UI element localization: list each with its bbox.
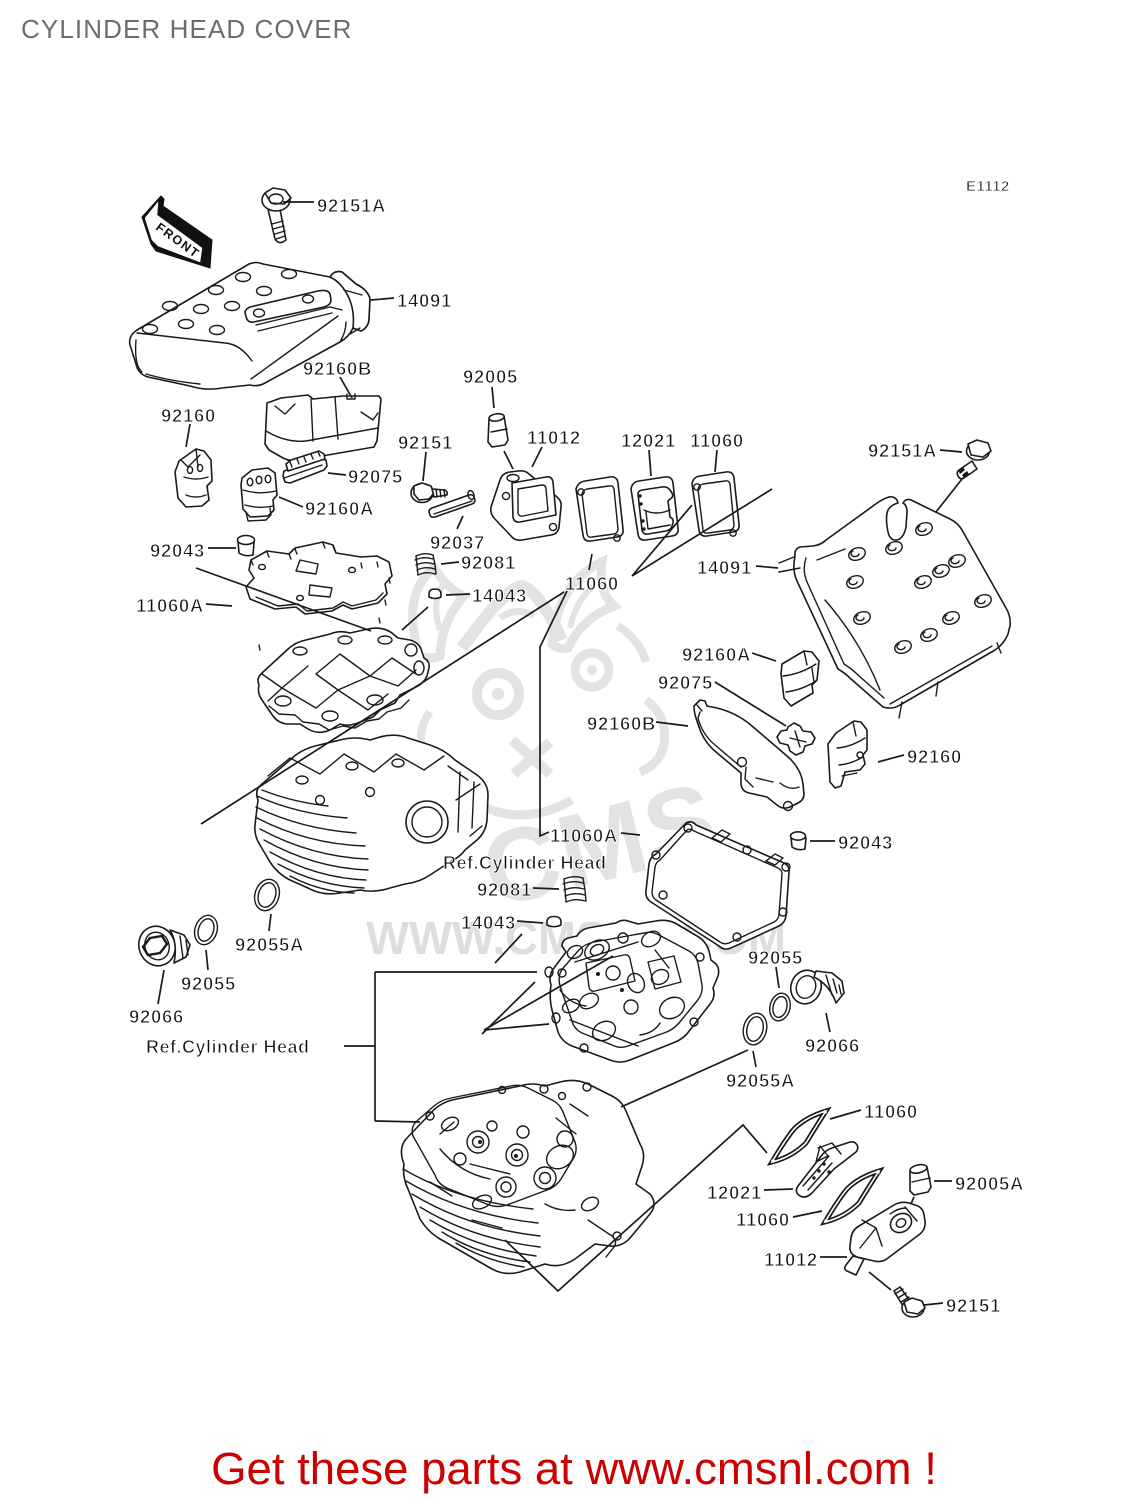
svg-text:Ref.Cylinder Head: Ref.Cylinder Head [146, 1037, 310, 1057]
svg-text:92066: 92066 [129, 1006, 184, 1027]
svg-text:11012: 11012 [764, 1249, 818, 1270]
svg-text:92151A: 92151A [868, 440, 937, 461]
svg-text:92151: 92151 [946, 1295, 1001, 1316]
svg-text:92043: 92043 [150, 540, 205, 561]
svg-text:92037: 92037 [430, 532, 485, 553]
svg-text:14043: 14043 [461, 912, 516, 933]
svg-text:92075: 92075 [658, 672, 713, 693]
svg-text:14043: 14043 [472, 585, 527, 606]
svg-text:92151: 92151 [398, 432, 453, 453]
svg-text:92160B: 92160B [303, 358, 372, 379]
svg-text:92055A: 92055A [726, 1070, 795, 1091]
svg-text:92005A: 92005A [955, 1173, 1024, 1194]
svg-text:11060: 11060 [736, 1209, 790, 1230]
svg-text:12021: 12021 [707, 1182, 762, 1203]
svg-text:92075: 92075 [348, 466, 403, 487]
svg-text:14091: 14091 [397, 290, 452, 311]
svg-text:11060: 11060 [565, 573, 619, 594]
svg-text:92055: 92055 [181, 973, 236, 994]
svg-text:14091: 14091 [697, 557, 752, 578]
svg-text:CYLINDER HEAD COVER: CYLINDER HEAD COVER [21, 14, 353, 44]
svg-text:11060A: 11060A [550, 825, 618, 846]
svg-text:92160A: 92160A [305, 498, 374, 519]
svg-text:E1112: E1112 [966, 178, 1010, 195]
svg-text:92160B: 92160B [587, 713, 656, 734]
svg-text:92066: 92066 [805, 1035, 860, 1056]
svg-text:11060: 11060 [690, 430, 744, 451]
svg-text:12021: 12021 [621, 430, 676, 451]
svg-text:92055A: 92055A [235, 934, 304, 955]
svg-text:92160A: 92160A [682, 644, 751, 665]
svg-text:92151A: 92151A [317, 195, 386, 216]
svg-text:Ref.Cylinder Head: Ref.Cylinder Head [443, 853, 607, 873]
svg-text:11012: 11012 [527, 427, 581, 448]
svg-text:92081: 92081 [477, 879, 532, 900]
svg-text:92160: 92160 [161, 405, 216, 426]
svg-text:92043: 92043 [838, 832, 893, 853]
svg-text:Get these parts at www.cmsnl.c: Get these parts at www.cmsnl.com ! [211, 1443, 937, 1494]
svg-text:92055: 92055 [748, 947, 803, 968]
svg-text:11060A: 11060A [136, 595, 204, 616]
svg-text:92160: 92160 [907, 746, 962, 767]
svg-text:92081: 92081 [461, 552, 516, 573]
svg-text:11060: 11060 [864, 1101, 918, 1122]
svg-text:92005: 92005 [463, 366, 518, 387]
